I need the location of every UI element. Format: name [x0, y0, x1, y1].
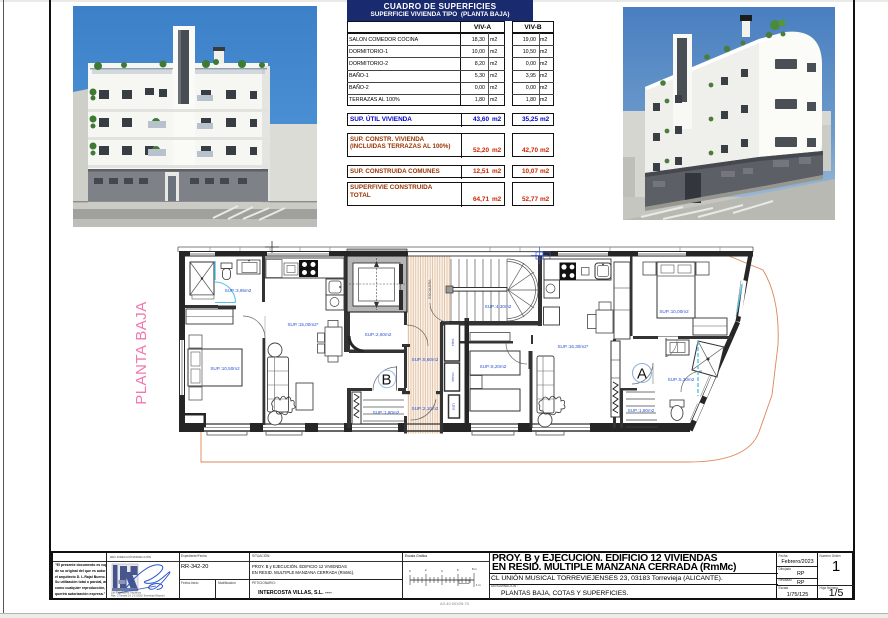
svg-text:SUP.:10,00m2: SUP.:10,00m2 — [659, 309, 689, 314]
svg-text:RITI: RITI — [452, 403, 456, 409]
svg-text:SUP.:5,30m2: SUP.:5,30m2 — [668, 377, 695, 382]
svg-text:PLANTA BAJA: PLANTA BAJA — [133, 301, 150, 405]
svg-text:SUP.:4,30m2: SUP.:4,30m2 — [485, 304, 512, 309]
svg-text:SUP.:10,50m2: SUP.:10,50m2 — [210, 366, 240, 371]
svg-text:6: 6 — [457, 568, 459, 572]
svg-text:SUP.:6,60m2: SUP.:6,60m2 — [412, 357, 439, 362]
svg-text:teleco: teleco — [451, 372, 455, 381]
svg-text:SUP.:15,00m2*: SUP.:15,00m2* — [287, 322, 318, 327]
svg-text:elect.: elect. — [451, 338, 455, 346]
svg-text:SUP.:1,80m2: SUP.:1,80m2 — [628, 408, 655, 413]
svg-text:Rda. C.Tomasti 14, 2-5 03181: Rda. C.Tomasti 14, 2-5 03181 Torrevieja … — [111, 595, 165, 598]
svg-text:SUP.:2,10m2: SUP.:2,10m2 — [412, 406, 439, 411]
svg-text:SUP.:8,20m2: SUP.:8,20m2 — [480, 364, 507, 369]
svg-text:0: 0 — [409, 569, 411, 573]
svg-text:8 m: 8 m — [472, 567, 477, 571]
svg-text:ESCALERA: ESCALERA — [428, 279, 432, 299]
svg-text:4: 4 — [441, 569, 443, 573]
svg-text:2: 2 — [425, 568, 427, 572]
svg-text:SUP.:16,30m2*: SUP.:16,30m2* — [557, 344, 588, 349]
svg-text:SUP.:2,60m2: SUP.:2,60m2 — [365, 332, 392, 337]
svg-text:SUP.:1,80m2: SUP.:1,80m2 — [373, 410, 400, 415]
svg-text:SUP.:3,95m2: SUP.:3,95m2 — [225, 288, 252, 293]
svg-text:1 m: 1 m — [476, 583, 481, 587]
svg-text:A: A — [637, 366, 647, 383]
svg-text:B: B — [381, 372, 391, 389]
